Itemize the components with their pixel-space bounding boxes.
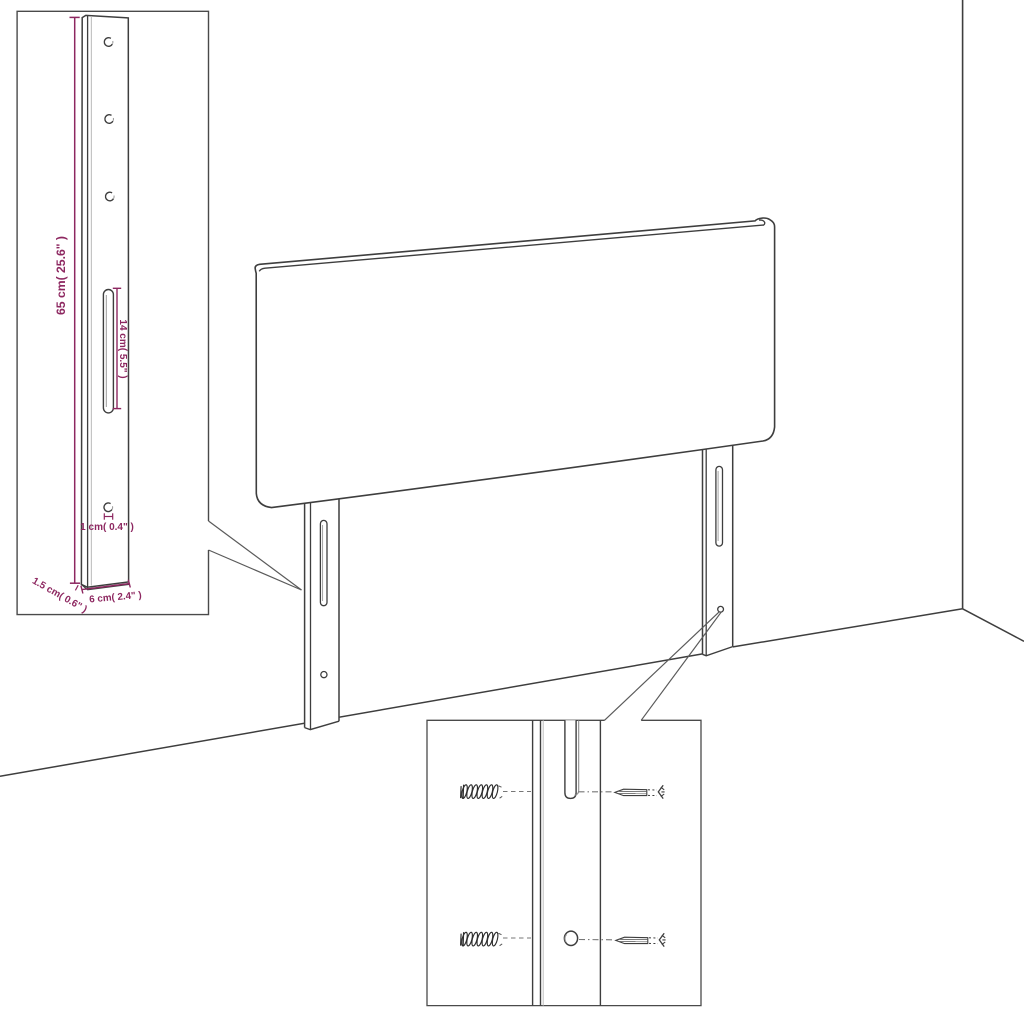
svg-text:14 cm( 5.5" ): 14 cm( 5.5" ) [117, 319, 128, 378]
svg-text:6 cm( 2.4" ): 6 cm( 2.4" ) [89, 590, 142, 606]
svg-text:65 cm( 25.6" ): 65 cm( 25.6" ) [54, 236, 68, 315]
svg-text:1 cm( 0.4" ): 1 cm( 0.4" ) [80, 522, 134, 533]
svg-text:1.5 cm( 0.6" ): 1.5 cm( 0.6" ) [30, 576, 89, 616]
